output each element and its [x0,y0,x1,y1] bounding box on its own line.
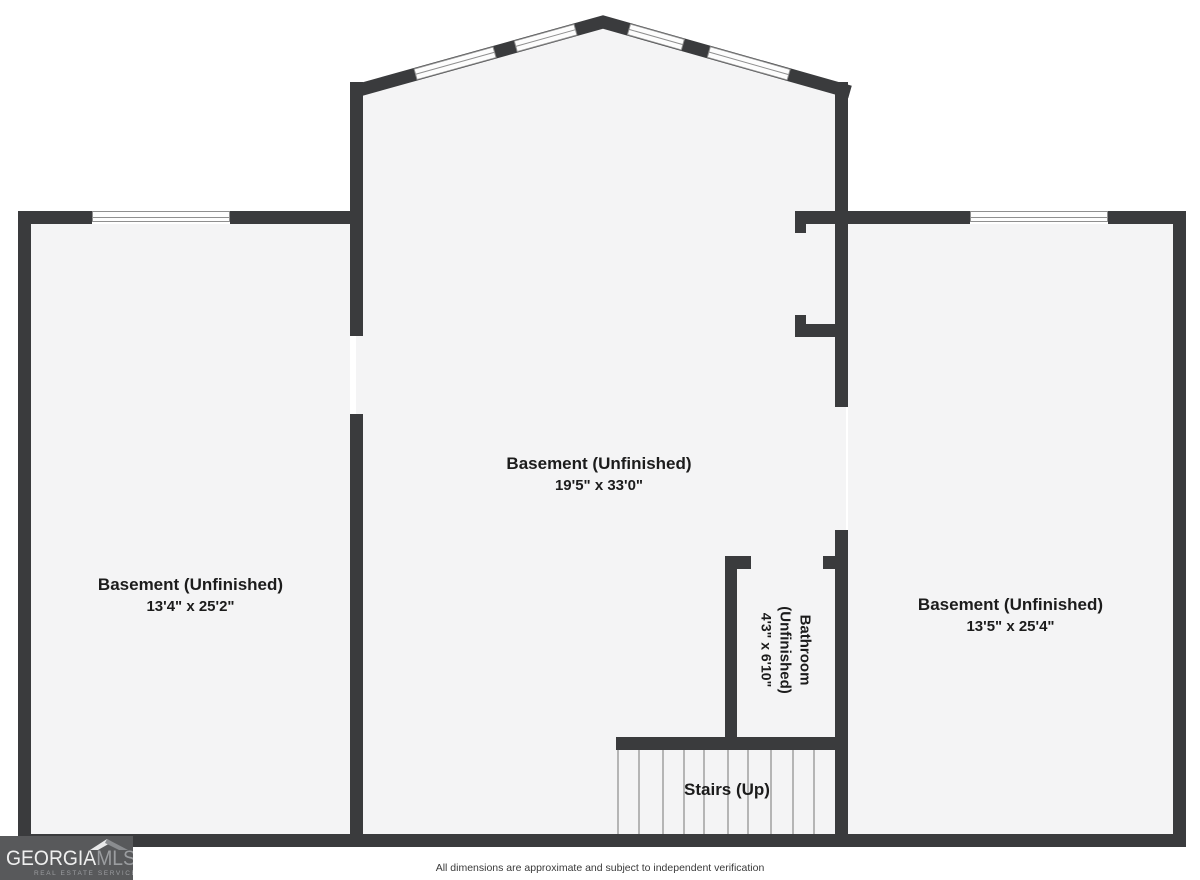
right-room-dims: 13'5" x 25'4" [966,617,1054,637]
niche-wall-bottom [795,324,835,337]
center-right-wall-lower [835,530,848,847]
center-right-wall-upper [835,82,848,407]
center-room-dims: 19'5" x 33'0" [555,476,643,496]
outer-wall-bottom [18,834,1186,847]
center-room-label: Basement (Unfinished) 19'5" x 33'0" [363,453,835,496]
bathroom-dims: 4'3" x 6'10" [757,555,775,745]
outer-wall-right [1173,211,1186,847]
logo-brand-primary: GEORGIA [6,847,96,870]
center-left-wall-upper [350,82,363,336]
slope-window-icon [414,47,496,80]
niche-jamb-bottom [795,315,806,324]
logo-brand-text: GEORGIAMLS [6,847,133,871]
logo-tagline: REAL ESTATE SERVICES [34,870,133,877]
window-icon-left-room [92,211,230,222]
niche-jamb-top [795,224,806,233]
slope-window-icon [707,47,790,80]
bathroom-wall-left [725,556,737,749]
bathroom-wall-top [725,556,751,569]
logo-brand-secondary: MLS [96,847,133,870]
right-room-floor [848,224,1173,834]
window-icon-right-room [970,211,1108,222]
left-room-name: Basement (Unfinished) [98,574,283,597]
top-wall-right-a [795,211,970,224]
bathroom-label: Bathroom (Unfinished) 4'3" x 6'10" [757,555,814,745]
roof-slope-walls [352,22,850,92]
right-room-label: Basement (Unfinished) 13'5" x 25'4" [848,594,1173,637]
slope-window-icon [627,24,684,50]
right-room-name: Basement (Unfinished) [918,594,1103,617]
center-left-wall-lower [350,414,363,847]
roof-slope-left-windows [414,24,577,79]
dimensions-disclaimer: All dimensions are approximate and subje… [0,862,1200,874]
slope-window-icon [514,24,577,51]
center-room-name: Basement (Unfinished) [506,453,691,476]
left-room-floor [31,224,350,834]
top-wall-left-b [230,211,363,224]
left-room-label: Basement (Unfinished) 13'4" x 25'2" [31,574,350,617]
bathroom-name: Bathroom (Unfinished) [776,594,815,706]
georgia-mls-logo: GEORGIAMLS REAL ESTATE SERVICES [0,836,133,880]
outer-wall-left [18,211,31,847]
roof-slope-right-windows [627,24,790,80]
stairs-edge-line [617,750,619,834]
top-wall-left-a [18,211,92,224]
floorplan-canvas: Basement (Unfinished) 19'5" x 33'0" Base… [0,0,1200,880]
left-room-dims: 13'4" x 25'2" [146,597,234,617]
bathroom-door-jamb [823,556,835,569]
stairs-label: Stairs (Up) [620,780,834,800]
